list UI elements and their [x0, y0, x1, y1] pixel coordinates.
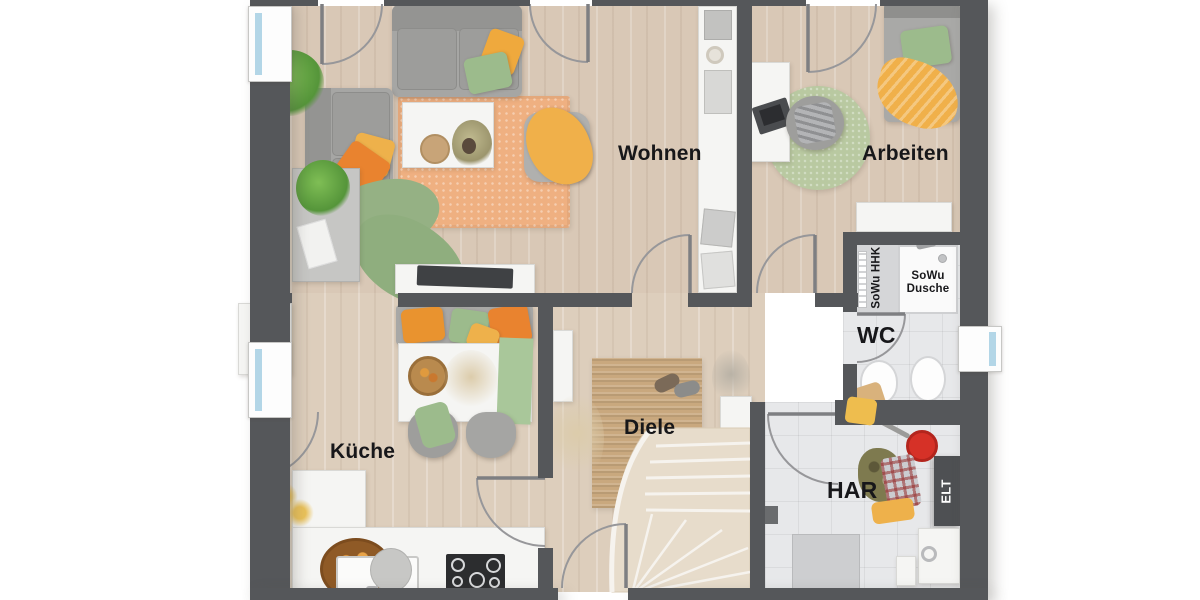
- wall-right: [960, 0, 988, 592]
- room-label-diele: Diele: [624, 417, 675, 438]
- wall-kitchen-living: [250, 293, 292, 303]
- window-glass: [255, 13, 262, 75]
- fixture-label-sowu-hhk: SoWu HHK: [870, 243, 883, 313]
- wall-kitchen-hall: [538, 548, 553, 592]
- wall-top: [384, 0, 530, 6]
- room-label-wc: WC: [857, 324, 896, 347]
- towel-on-wall-yellow: [844, 396, 877, 426]
- wall-bottom: [628, 588, 988, 600]
- fixture-label-sowu-dusche: SoWu Dusche: [899, 270, 957, 296]
- fixture-label-elt: ELT: [940, 466, 955, 516]
- room-label-wohnen: Wohnen: [618, 143, 702, 164]
- window-glass: [989, 332, 996, 366]
- wall-bottom: [250, 588, 558, 600]
- wall-shelf-cap: [688, 293, 752, 307]
- room-label-har: HAR: [827, 479, 877, 502]
- floorplan-canvas: Wohnen Arbeiten Küche Diele WC HAR SoWu …: [0, 0, 1200, 600]
- window-left-bottom: [248, 342, 292, 418]
- wall-top: [880, 0, 960, 6]
- fixture-label-sowu-dusche-line2: Dusche: [907, 283, 950, 295]
- window-left-top: [248, 6, 292, 82]
- window-glass: [255, 349, 262, 411]
- wall-bath-top: [843, 232, 960, 245]
- wall-top: [592, 0, 806, 6]
- wall-living-hall: [398, 293, 632, 307]
- room-label-arbeiten: Arbeiten: [862, 143, 949, 164]
- fixture-label-sowu-dusche-line1: SoWu: [911, 270, 944, 282]
- window-wc: [958, 326, 1002, 372]
- wall-kitchen-hall: [538, 293, 553, 478]
- wall-hall-har: [750, 402, 765, 592]
- room-label-kueche: Küche: [330, 441, 395, 462]
- wall-bath-left: [843, 245, 857, 312]
- wall-shelf-column: [737, 0, 752, 293]
